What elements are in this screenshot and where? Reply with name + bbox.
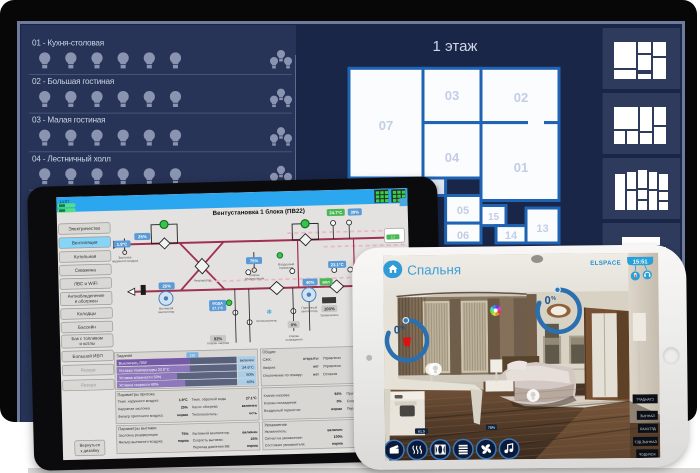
svg-text:Увлажнение: Увлажнение	[264, 422, 288, 428]
svg-text:50%: 50%	[246, 373, 254, 377]
svg-text:Общие: Общие	[262, 349, 276, 354]
svg-text:06: 06	[457, 230, 469, 242]
svg-text:❄: ❄	[266, 308, 272, 316]
svg-text:Электричество: Электричество	[68, 226, 101, 232]
svg-text:Резерв: Резерв	[80, 367, 96, 372]
svg-text:05: 05	[457, 205, 469, 217]
svg-text:Параметры вытяжки: Параметры вытяжки	[118, 425, 156, 431]
svg-text:Бассейн: Бассейн	[78, 323, 96, 329]
svg-text:теплоноситель: теплоноситель	[256, 318, 277, 323]
svg-text:01: 01	[514, 160, 528, 175]
svg-text:Клапан нагрева: Клапан нагрева	[207, 341, 229, 346]
svg-text:рециркуляции: рециркуляции	[245, 276, 265, 281]
svg-text:23.1°C: 23.1°C	[331, 262, 344, 267]
svg-text:есть: есть	[249, 411, 257, 415]
svg-text:охлаждения: охлаждения	[286, 337, 303, 341]
svg-text:и котлы: и котлы	[79, 341, 95, 346]
svg-text:открыты: открыты	[303, 356, 319, 360]
svg-text:норма: норма	[177, 413, 188, 417]
svg-text:92%: 92%	[334, 392, 342, 396]
svg-text:и обогревы: и обогревы	[75, 298, 98, 304]
svg-text:ЛВС и WiFi: ЛВС и WiFi	[74, 281, 98, 287]
svg-text:15: 15	[488, 212, 500, 223]
svg-text:24.7°C: 24.7°C	[329, 210, 342, 215]
svg-text:вентилятор: вентилятор	[301, 309, 317, 313]
svg-text:к дизайну: к дизайну	[80, 448, 100, 454]
svg-text:Теплоноситель:: Теплоноситель:	[192, 412, 218, 417]
svg-text:02 - Большая гостиная: 02 - Большая гостиная	[32, 77, 114, 86]
svg-text:включен: включен	[242, 404, 257, 408]
svg-text:78%: 78%	[488, 426, 496, 430]
svg-text:термостат: термостат	[279, 266, 294, 270]
svg-text:Вентиляция: Вентиляция	[72, 240, 98, 246]
svg-text:БАННЫЕ ДЕТ: БАННЫЕ ДЕТ	[635, 440, 657, 444]
svg-text:04 - Лестничный холл: 04 - Лестничный холл	[32, 154, 111, 163]
svg-text:2.2: 2.2	[391, 235, 396, 239]
svg-text:01 - Кухня-столовая: 01 - Кухня-столовая	[32, 39, 104, 48]
svg-text:216: 216	[190, 353, 196, 357]
svg-text:нет: нет	[313, 372, 319, 376]
svg-text:14:07: 14:07	[59, 199, 70, 204]
svg-text:Увлажнитель:: Увлажнитель:	[264, 429, 286, 434]
svg-text:наружного воздуха: наружного воздуха	[112, 259, 139, 264]
svg-text:Спальня: Спальня	[407, 262, 461, 278]
svg-text:15:51: 15:51	[633, 259, 649, 265]
svg-text:вентилятор: вентилятор	[158, 310, 174, 314]
svg-text:25%: 25%	[251, 437, 259, 441]
svg-text:норма: норма	[332, 441, 343, 445]
svg-text:Увлажнитель: Увлажнитель	[320, 313, 339, 317]
svg-text:75%: 75%	[250, 258, 259, 263]
svg-text:02: 02	[514, 90, 528, 105]
svg-text:03: 03	[445, 88, 459, 103]
svg-text:СТАНДАРТ: СТАНДАРТ	[636, 398, 654, 402]
svg-text:%: %	[551, 296, 556, 302]
svg-text:вкл: вкл	[322, 279, 330, 284]
svg-text:25%: 25%	[138, 234, 147, 239]
svg-text:40%: 40%	[306, 280, 315, 285]
svg-text:14: 14	[505, 230, 518, 242]
svg-text:Скважина: Скважина	[75, 267, 97, 273]
svg-text:1.9°C: 1.9°C	[117, 242, 128, 247]
svg-text:Управлени: Управлени	[323, 356, 341, 360]
svg-text:СЖК:: СЖК:	[263, 358, 272, 362]
svg-text:61.5: 61.5	[418, 430, 425, 434]
svg-text:Клапан нагрева:: Клапан нагрева:	[263, 393, 290, 398]
svg-text:Вентустановка 1 блока (ПВ22): Вентустановка 1 блока (ПВ22)	[213, 208, 305, 217]
svg-text:03 - Малая гостиная: 03 - Малая гостиная	[32, 116, 105, 125]
svg-text:Выключить ПВУ: Выключить ПВУ	[119, 361, 148, 366]
svg-text:ДЕТСКАЯ: ДЕТСКАЯ	[640, 427, 656, 431]
svg-text:100%: 100%	[334, 435, 344, 439]
svg-text:ELSPACE: ELSPACE	[590, 260, 621, 267]
svg-text:Колодцы: Колодцы	[77, 311, 96, 316]
svg-text:КОРИДОР: КОРИДОР	[638, 453, 655, 457]
svg-text:27.1°C: 27.1°C	[246, 396, 257, 400]
svg-text:27.1°C: 27.1°C	[212, 306, 224, 310]
svg-text:0%: 0%	[291, 322, 297, 327]
svg-text:100%: 100%	[324, 306, 335, 311]
svg-text:Большой ИБП: Большой ИБП	[72, 352, 102, 359]
svg-text:0: 0	[394, 324, 400, 336]
svg-text:Аварии:: Аварии:	[263, 366, 276, 370]
svg-text:%: %	[400, 325, 405, 331]
svg-text:Скорость вытяжки:: Скорость вытяжки:	[193, 438, 224, 443]
svg-text:включен: включен	[240, 358, 254, 362]
svg-text:Параметры притока: Параметры притока	[117, 391, 155, 397]
svg-text:норма: норма	[331, 407, 342, 411]
svg-text:включен: включен	[242, 430, 257, 434]
svg-text:Котельная: Котельная	[74, 254, 97, 260]
svg-text:0: 0	[545, 295, 551, 307]
svg-text:норма: норма	[178, 439, 189, 443]
svg-text:Управлени: Управлени	[323, 364, 341, 368]
svg-text:07: 07	[379, 118, 393, 133]
svg-text:норма: норма	[247, 444, 258, 448]
svg-text:25%: 25%	[162, 283, 171, 288]
svg-text:25%: 25%	[181, 405, 189, 409]
svg-text:Останов: Останов	[323, 372, 337, 376]
svg-text:ВОДА: ВОДА	[212, 301, 223, 305]
svg-text:04: 04	[445, 150, 460, 165]
svg-text:75%: 75%	[181, 432, 189, 436]
svg-text:1.9°C: 1.9°C	[179, 398, 188, 402]
svg-text:БАННЫЕ: БАННЫЕ	[639, 414, 654, 418]
svg-text:Резерв: Резерв	[81, 382, 97, 387]
svg-text:Наружная заслонка: Наружная заслонка	[118, 406, 150, 411]
svg-text:Рекуператор: Рекуператор	[194, 278, 212, 282]
svg-text:нет: нет	[313, 364, 319, 368]
svg-text:24.6°C: 24.6°C	[242, 365, 254, 369]
svg-text:13: 13	[536, 223, 548, 235]
svg-text:40%: 40%	[247, 380, 255, 384]
svg-text:включен: включен	[327, 428, 342, 432]
svg-text:Задания: Задания	[116, 353, 132, 358]
svg-text:Насос обогрева: Насос обогрева	[192, 405, 218, 410]
svg-text:39%: 39%	[351, 210, 360, 215]
